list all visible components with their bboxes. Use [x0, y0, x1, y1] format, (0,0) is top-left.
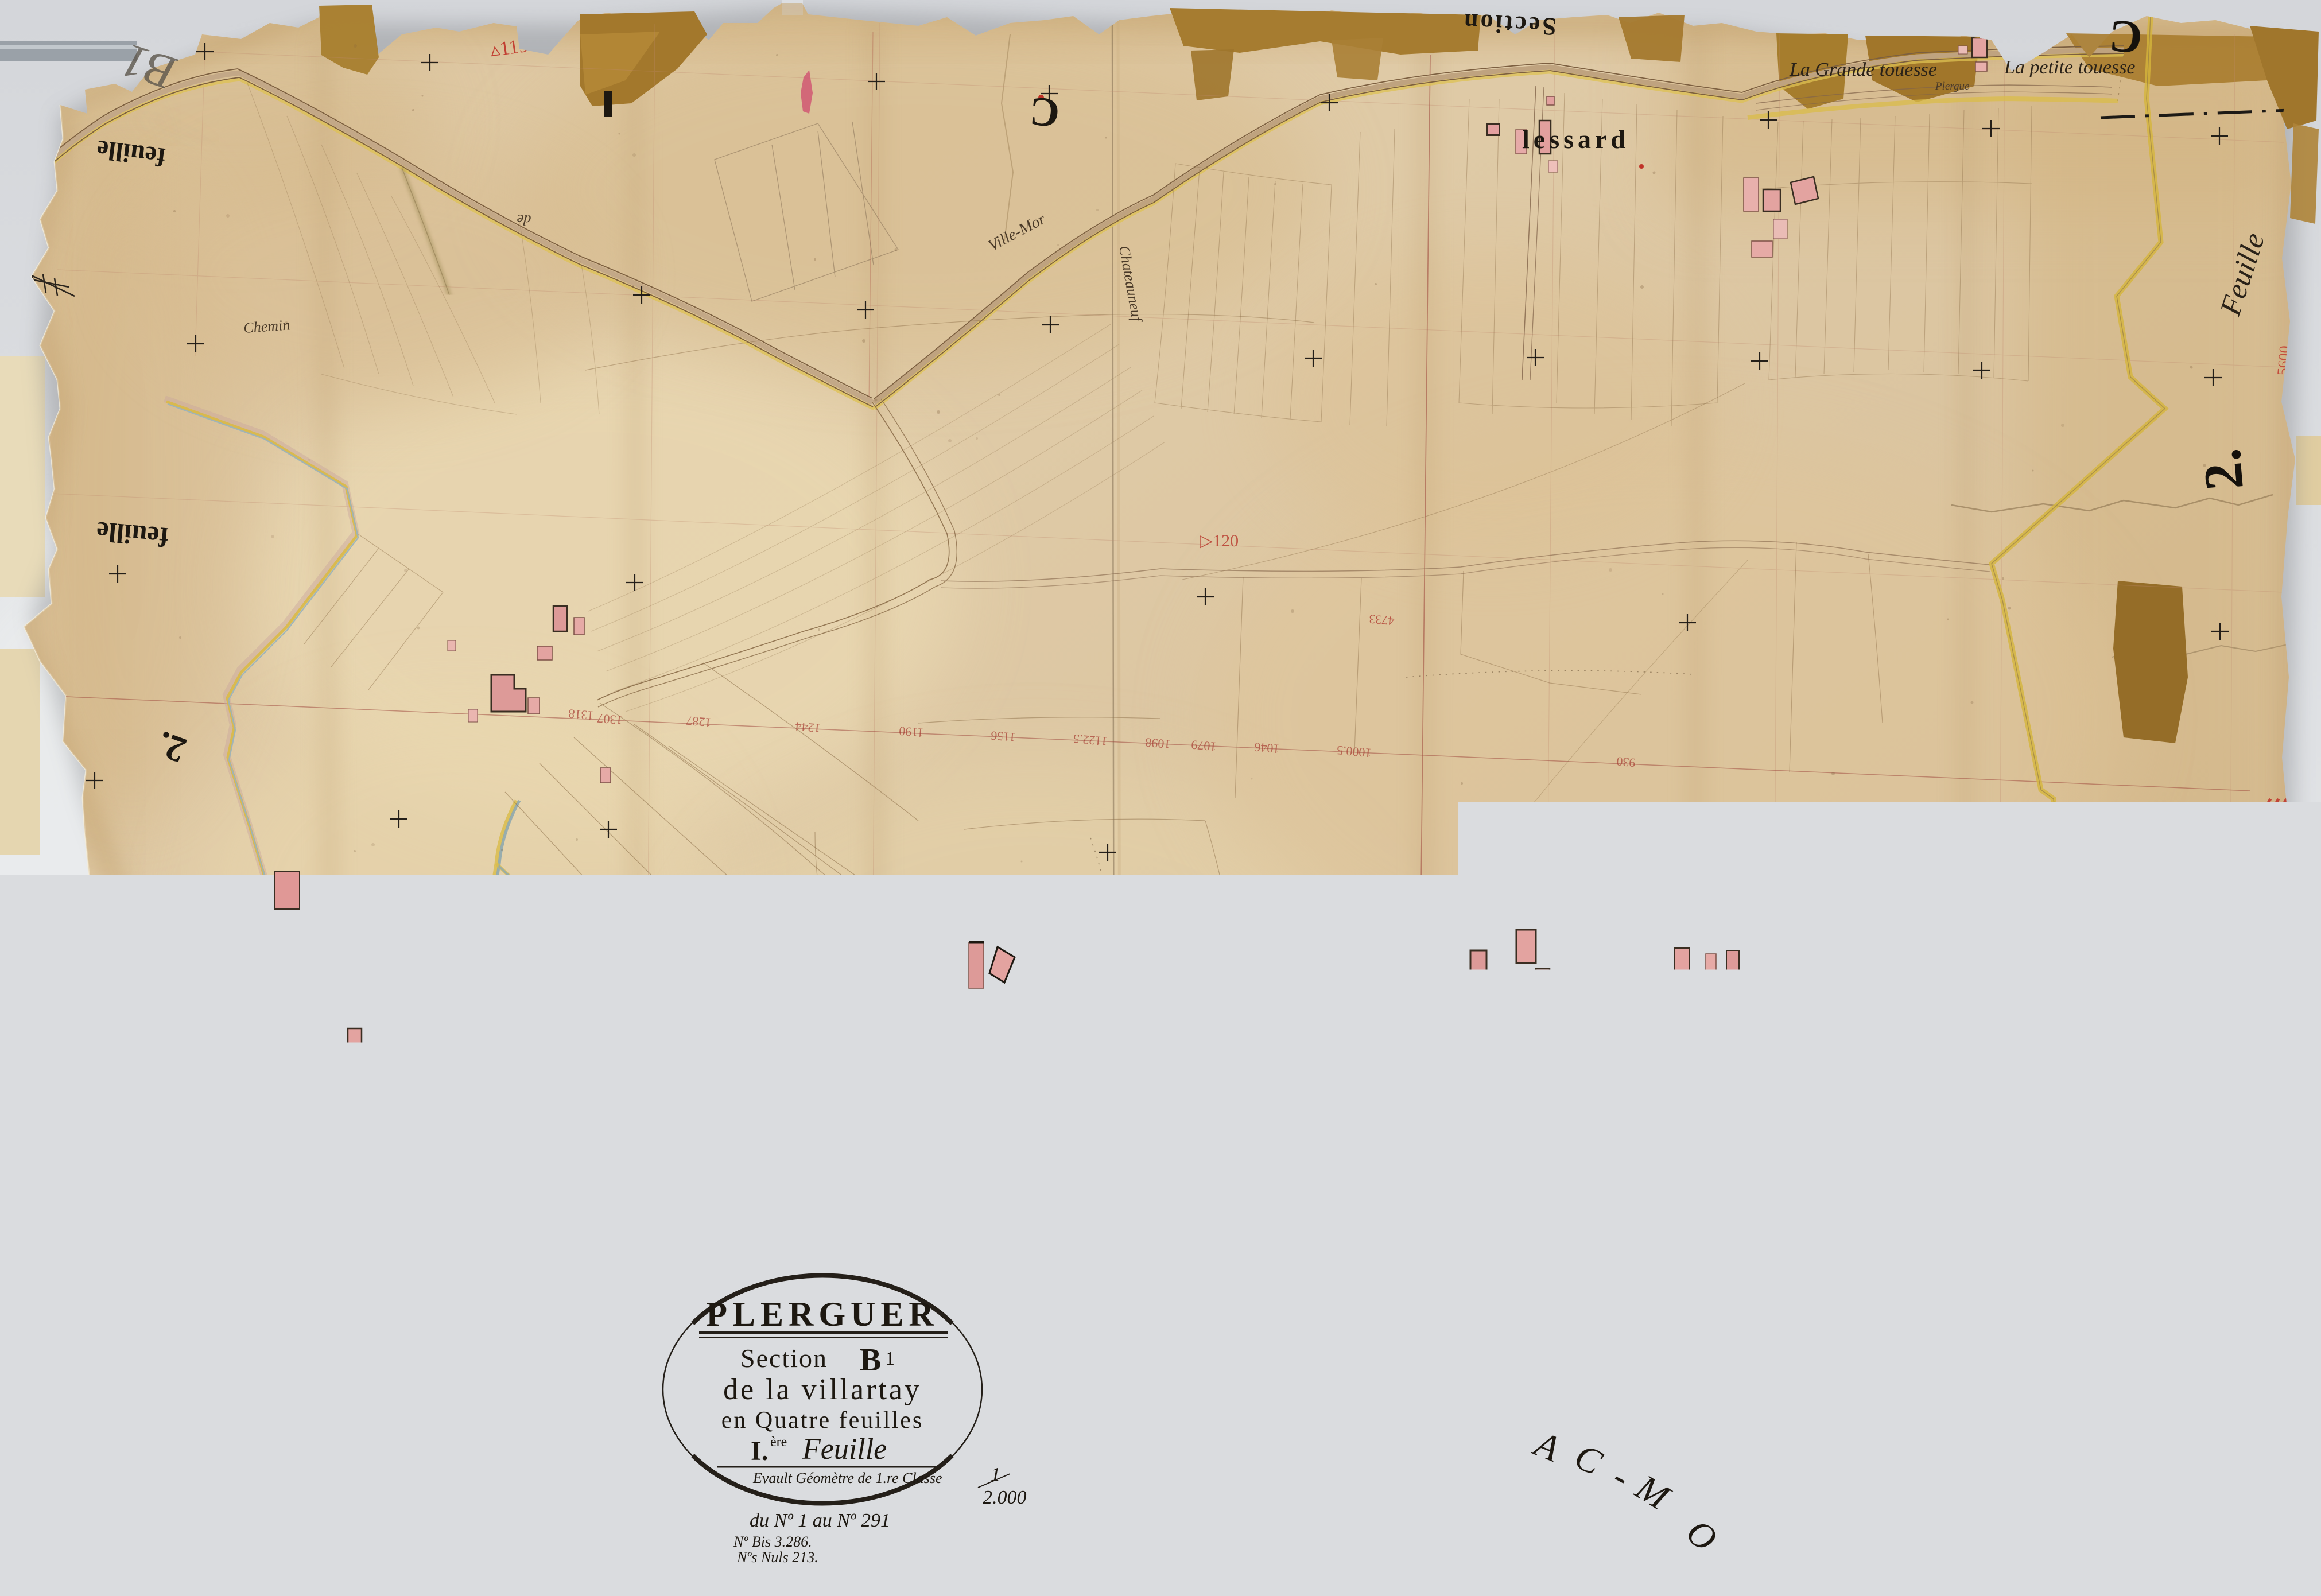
svg-text:1000.5: 1000.5	[1336, 743, 1372, 760]
svg-text:A: A	[273, 815, 295, 849]
svg-text:100: 100	[1266, 1542, 1283, 1555]
svg-text:du Nº 1 au Nº 291: du Nº 1 au Nº 291	[750, 1510, 890, 1531]
svg-text:Feuille: Feuille	[802, 1433, 887, 1466]
svg-text:PLERGUER: PLERGUER	[706, 1295, 938, 1333]
svg-text:de: de	[1290, 1243, 1305, 1261]
svg-text:ère: ère	[770, 1435, 787, 1450]
svg-text:4733: 4733	[1368, 612, 1395, 628]
svg-text:1079: 1079	[1190, 737, 1217, 754]
svg-text:Nº Bis 3.286.: Nº Bis 3.286.	[733, 1533, 812, 1550]
svg-text:en Quatre feuilles: en Quatre feuilles	[721, 1407, 924, 1434]
svg-text:Section: Section	[740, 1343, 828, 1373]
svg-text:2.000: 2.000	[983, 1487, 1027, 1508]
svg-text:Nºs Nuls 213.: Nºs Nuls 213.	[736, 1549, 818, 1566]
svg-text:1098: 1098	[1144, 735, 1171, 752]
svg-text:développement: développement	[355, 1325, 493, 1351]
svg-text:▷120: ▷120	[1200, 531, 1239, 550]
svg-text:A: A	[527, 820, 550, 854]
svg-text:1317: 1317	[694, 744, 720, 760]
svg-text:Le Mesnil: Le Mesnil	[236, 1125, 360, 1151]
svg-text:1: 1	[885, 1348, 895, 1369]
svg-text:La ville· Boulay: La ville· Boulay	[856, 965, 1072, 994]
svg-text:La Grande touesse: La Grande touesse	[1789, 59, 1937, 80]
svg-text:2.: 2.	[2190, 446, 2255, 492]
svg-text:A: A	[515, 1320, 540, 1357]
svg-text:lessard: lessard	[1522, 125, 1629, 154]
svg-text:Ille-et-Vilaine: Ille-et-Vilaine	[746, 1258, 840, 1276]
svg-text:de la villartay: de la villartay	[723, 1373, 922, 1406]
svg-text:Section: Section	[1461, 8, 1557, 41]
svg-text:C: C	[1028, 88, 1062, 137]
svg-text:1190: 1190	[898, 724, 924, 740]
svg-text:300: 300	[1489, 1551, 1507, 1564]
svg-text:I.: I.	[751, 1436, 769, 1466]
svg-text:1046: 1046	[1253, 740, 1280, 756]
svg-text:feuille: feuille	[95, 516, 169, 553]
svg-text:930: 930	[1616, 754, 1636, 770]
svg-text:de: de	[516, 211, 531, 229]
svg-text:Evault Géomètre de 1.re Classe: Evault Géomètre de 1.re Classe	[752, 1470, 942, 1486]
svg-text:0: 0	[1155, 1537, 1161, 1550]
svg-text:Plergue: Plergue	[1935, 80, 1969, 92]
svg-text:Chemin: Chemin	[243, 316, 290, 336]
svg-text:1122.5: 1122.5	[1073, 732, 1108, 749]
svg-text:1156: 1156	[990, 728, 1016, 745]
svg-text:100: 100	[1044, 1534, 1061, 1547]
svg-text:La·ville-Morin: La·ville-Morin	[1528, 935, 1712, 963]
svg-text:B: B	[860, 1342, 881, 1378]
svg-text:M-35-: M-35-	[759, 1207, 834, 1239]
svg-text:200: 200	[1377, 1547, 1394, 1560]
svg-text:La· Foléterie: La· Foléterie	[1741, 977, 1911, 1005]
svg-text:1287: 1287	[685, 713, 712, 730]
svg-text:C: C	[2107, 10, 2144, 64]
